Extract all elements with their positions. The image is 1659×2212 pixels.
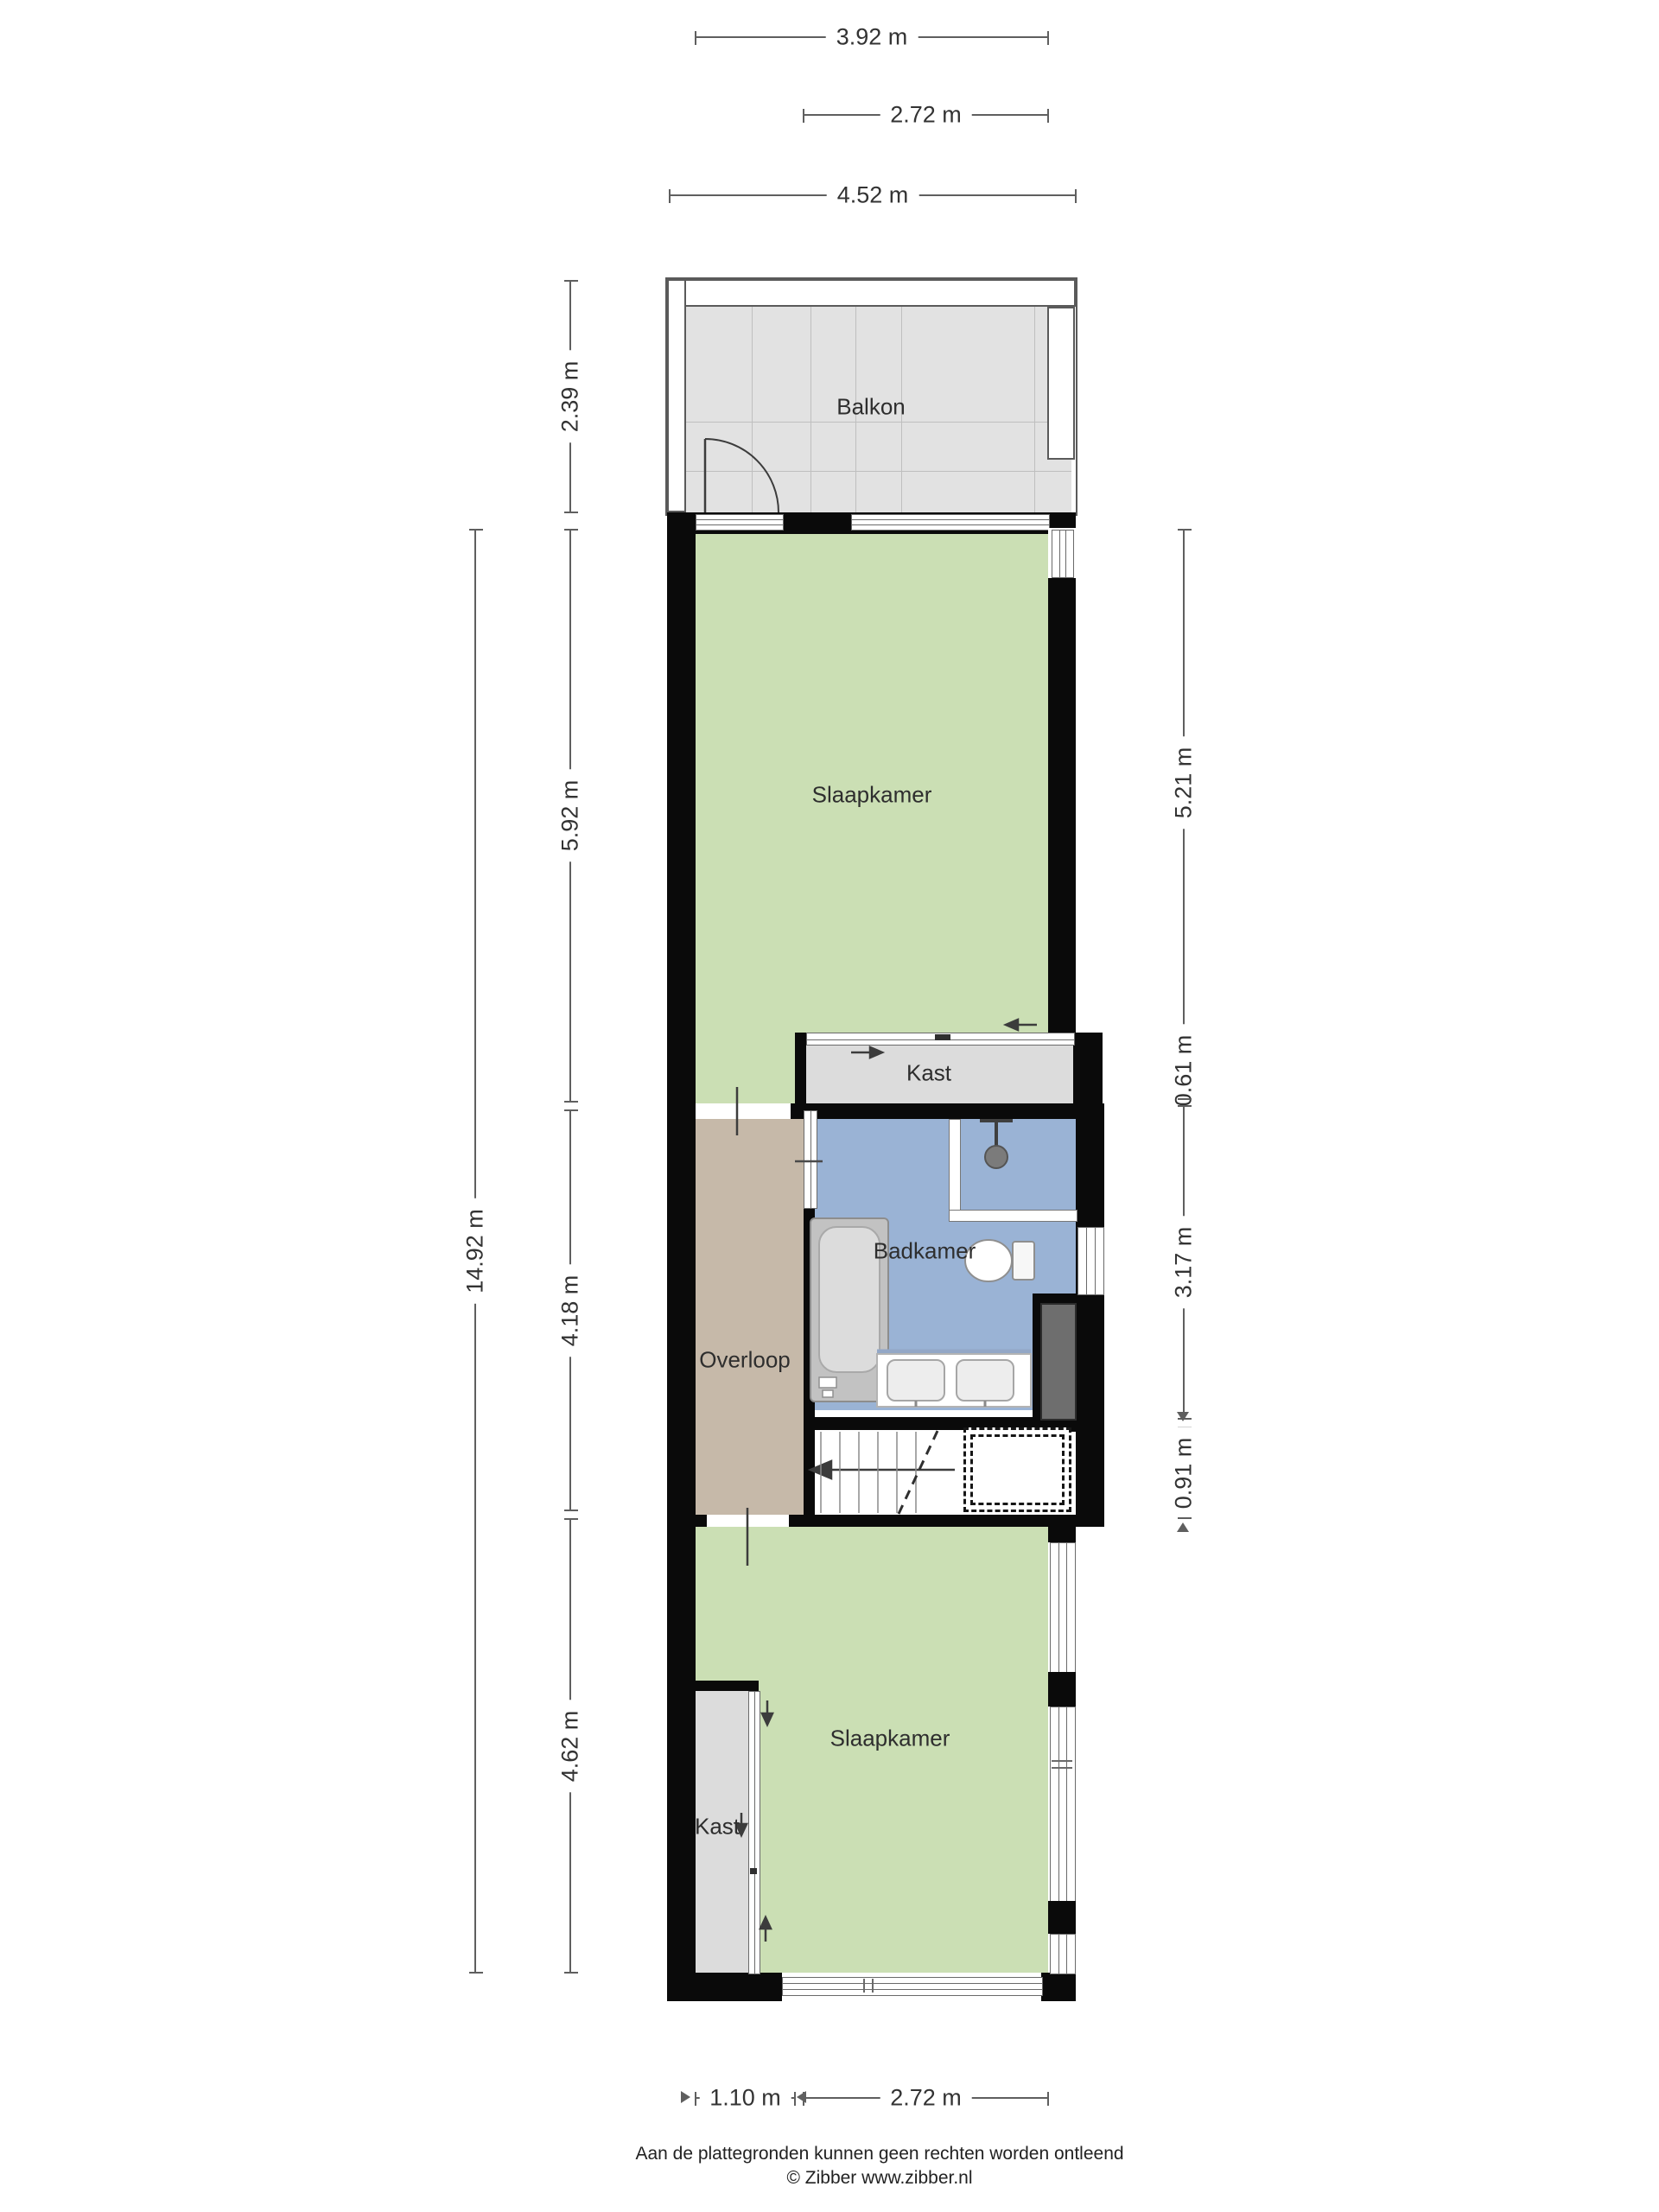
- dim-right-091: 0.91 m: [1183, 1427, 1185, 1518]
- dim-label: 5.21 m: [1171, 736, 1198, 829]
- dim-left-462: 4.62 m: [569, 1519, 571, 1973]
- balcony-railing-top: [667, 279, 1076, 307]
- balcony-grid-line: [684, 471, 1071, 472]
- dim-left-1492: 14.92 m: [474, 530, 476, 1973]
- dim-left-239: 2.39 m: [569, 281, 571, 512]
- dim-right-061: 0.61 m: [1183, 1042, 1185, 1099]
- wall-right-upper: [1048, 512, 1076, 1033]
- dim-label: 2.72 m: [880, 2085, 972, 2112]
- wall-bottom-right: [1041, 1973, 1076, 2001]
- duct-block: [1040, 1303, 1077, 1421]
- window-pier: [1048, 1901, 1076, 1934]
- dim-right-317: 3.17 m: [1183, 1106, 1185, 1419]
- room-overloop: [696, 1109, 804, 1515]
- dim-label: 4.18 m: [557, 1264, 584, 1357]
- skylight-void: [963, 1427, 1071, 1512]
- footer-disclaimer: Aan de plattegronden kunnen geen rechten…: [635, 2144, 1123, 2164]
- window-pier: [1048, 1672, 1076, 1707]
- dim-label: 1.10 m: [699, 2085, 791, 2112]
- room-badkamer: [815, 1119, 1076, 1294]
- skylight-void-inner: [970, 1434, 1065, 1505]
- badkamer-pocket-door: [804, 1110, 817, 1209]
- kast-onder-sliding-door: [748, 1691, 760, 1974]
- dim-label: 2.39 m: [557, 351, 584, 443]
- footer-copyright: © Zibber www.zibber.nl: [786, 2168, 972, 2189]
- balcony-grid-line: [752, 305, 753, 512]
- dim-label: 4.52 m: [827, 182, 919, 209]
- door-opening-overloop-bottom: [707, 1515, 789, 1527]
- dim-top-452: 4.52 m: [670, 194, 1076, 196]
- wall-right-kast: [1073, 1033, 1103, 1104]
- dim-label: 3.92 m: [826, 24, 918, 51]
- balcony-grid-line: [810, 305, 811, 512]
- bedroom2-right-window-3: [1050, 1934, 1076, 1974]
- dim-arrow: [1177, 1412, 1189, 1421]
- dim-arrow: [1177, 1522, 1189, 1532]
- dim-bottom-272: 2.72 m: [804, 2097, 1048, 2099]
- room-label-slaapkamer-boven: Slaapkamer: [812, 782, 932, 809]
- dim-label: 14.92 m: [462, 1198, 489, 1304]
- wall-kast-onder-top: [694, 1681, 759, 1691]
- bedroom2-right-window-2: [1050, 1707, 1076, 1903]
- balcony-grid-line: [1034, 305, 1035, 512]
- room-badkamer-lower: [815, 1294, 1033, 1410]
- dim-left-418: 4.18 m: [569, 1110, 571, 1510]
- dim-top-392: 3.92 m: [696, 36, 1048, 38]
- dim-arrow: [681, 2091, 690, 2103]
- bedroom-right-window: [1052, 530, 1074, 578]
- dim-label: 0.91 m: [1171, 1427, 1198, 1519]
- dim-label: 5.92 m: [557, 770, 584, 862]
- bedroom-top-window: [851, 514, 1050, 531]
- dim-left-592: 5.92 m: [569, 530, 571, 1102]
- room-label-balkon: Balkon: [836, 394, 906, 421]
- room-slaapkamer-boven-strip: [696, 1033, 795, 1103]
- bedroom2-bottom-window: [782, 1977, 1043, 1996]
- kast-boven-sliding-door: [806, 1033, 1075, 1046]
- dim-bottom-110: 1.10 m: [696, 2097, 795, 2099]
- shower-glass-horizontal: [949, 1210, 1077, 1222]
- dim-label: 0.61 m: [1171, 1025, 1198, 1117]
- stairs-area: [815, 1430, 963, 1515]
- dim-label: 4.62 m: [557, 1700, 584, 1792]
- room-label-kast-boven: Kast: [906, 1060, 951, 1087]
- wall-left: [667, 512, 696, 2001]
- room-label-kast-onder: Kast: [695, 1814, 740, 1840]
- wall-kast-divider: [795, 1033, 806, 1103]
- room-label-slaapkamer-onder: Slaapkamer: [830, 1726, 950, 1752]
- shower-glass-vertical: [949, 1119, 961, 1222]
- dim-label: 3.17 m: [1171, 1217, 1198, 1309]
- room-label-badkamer: Badkamer: [874, 1238, 976, 1265]
- door-opening-overloop-top: [696, 1103, 791, 1119]
- floorplan-canvas: Balkon Slaapkamer Kast Badkamer Overloop…: [0, 0, 1659, 2212]
- dim-top-272: 2.72 m: [804, 114, 1048, 116]
- balcony-railing-left: [667, 279, 686, 512]
- balcony-door-window: [696, 514, 784, 531]
- dim-label: 2.72 m: [880, 102, 972, 129]
- balcony-screen-right: [1047, 307, 1075, 460]
- room-label-overloop: Overloop: [699, 1347, 791, 1374]
- dim-right-521: 5.21 m: [1183, 530, 1185, 1035]
- wall-bottom-slab: [667, 1973, 782, 2001]
- badkamer-window: [1077, 1227, 1104, 1295]
- bedroom2-right-window-1: [1050, 1542, 1076, 1674]
- balcony-grid-line: [684, 422, 1071, 423]
